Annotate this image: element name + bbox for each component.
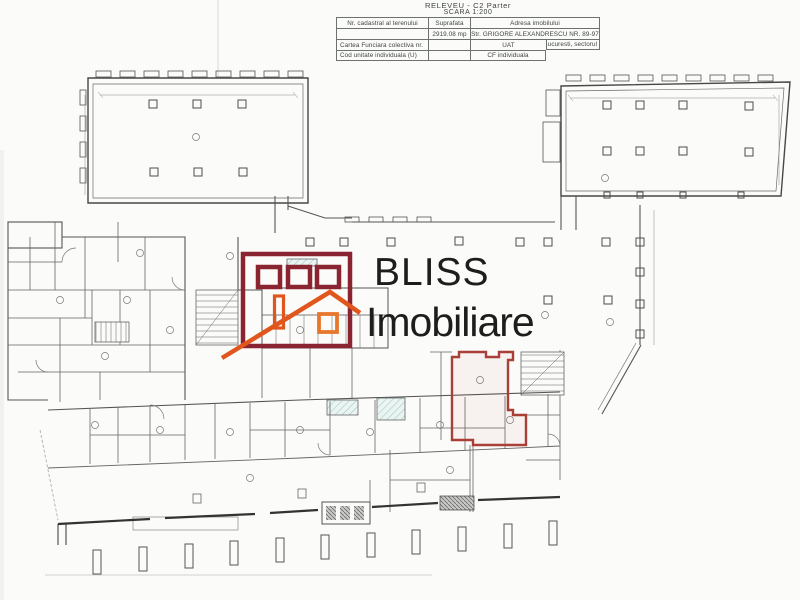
highlighted-unit <box>452 352 526 445</box>
title-block-table: Nr. cadastral al terenului Suprafata Adr… <box>336 17 600 61</box>
logo-window <box>319 314 337 332</box>
exterior-walls <box>88 78 790 203</box>
scanned-floor-plan-page: RELEVEU - C2 Parter SCARA 1:200 Nr. cada… <box>0 0 800 600</box>
watermark-brand-line1: BLISS <box>374 253 490 292</box>
cell-cadastral-value <box>336 28 428 39</box>
wall-ticks <box>80 71 773 222</box>
cell-cf-label: CF individuala <box>470 50 546 61</box>
watermark-brand-line2: Imobiliare <box>366 302 534 343</box>
cell-unit-code-value <box>428 50 470 61</box>
south-wall <box>58 497 560 545</box>
cell-land-book-value <box>428 39 470 50</box>
logo-house-icon <box>222 254 360 358</box>
cell-address-header: Adresa imobilului <box>470 17 600 28</box>
cell-address-value: Str. GRIGORE ALEXANDRESCU NR. 89-97 <box>470 28 600 39</box>
plan-scale: SCARA 1:200 <box>336 9 600 16</box>
cell-land-book-label: Cartea Funciara colectiva nr. <box>336 39 428 50</box>
cell-empty <box>546 50 600 61</box>
arcade-pillars <box>93 521 557 574</box>
cell-surface-header: Suprafata <box>428 17 470 28</box>
cell-cadastral-header: Nr. cadastral al terenului <box>336 17 428 28</box>
cell-surface-value: 2919.08 mp <box>428 28 470 39</box>
cell-uat-value: Bucuresti, sectorul 1 <box>546 39 600 50</box>
cell-uat-label: UAT <box>470 39 546 50</box>
cell-unit-code-label: Cod unitate individuala (U) <box>336 50 428 61</box>
